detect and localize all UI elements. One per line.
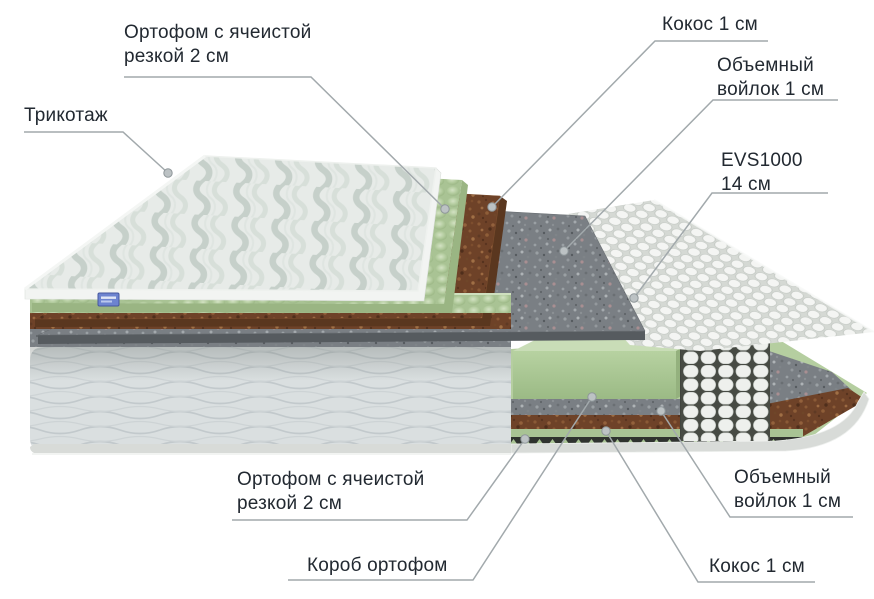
brand-tag (98, 293, 119, 306)
dot-kokos-bottom (602, 427, 610, 435)
dot-voilok-top (560, 247, 568, 255)
label-kokos-bottom: Кокос 1 см (709, 555, 805, 579)
label-korob: Короб ортофом (307, 554, 448, 578)
label-evs: EVS1000 14 см (721, 149, 803, 196)
dot-trikotazh (164, 169, 172, 177)
mattress-layers-diagram: Трикотаж Ортофом с ячеистой резкой 2 см … (0, 0, 874, 599)
dot-korob (588, 393, 596, 401)
dot-ortofom-bottom (521, 435, 529, 443)
dot-ortofom-top (441, 205, 449, 213)
label-kokos-top: Кокос 1 см (662, 13, 758, 37)
label-ortofom-top: Ортофом с ячеистой резкой 2 см (124, 21, 311, 68)
label-voilok-bottom: Объемный войлок 1 см (734, 466, 841, 513)
label-ortofom-bottom: Ортофом с ячеистой резкой 2 см (237, 468, 424, 515)
dot-voilok-bottom (657, 407, 665, 415)
dot-kokos-top (488, 203, 496, 211)
label-trikotazh: Трикотаж (24, 104, 108, 128)
tricot-cover-sheet (25, 156, 441, 306)
box-front-face (30, 347, 511, 454)
leader-trikotazh (24, 132, 168, 173)
pocket-springs-cut-face (680, 337, 770, 441)
dot-evs (630, 294, 638, 302)
label-voilok-top: Объемный войлок 1 см (717, 54, 824, 101)
